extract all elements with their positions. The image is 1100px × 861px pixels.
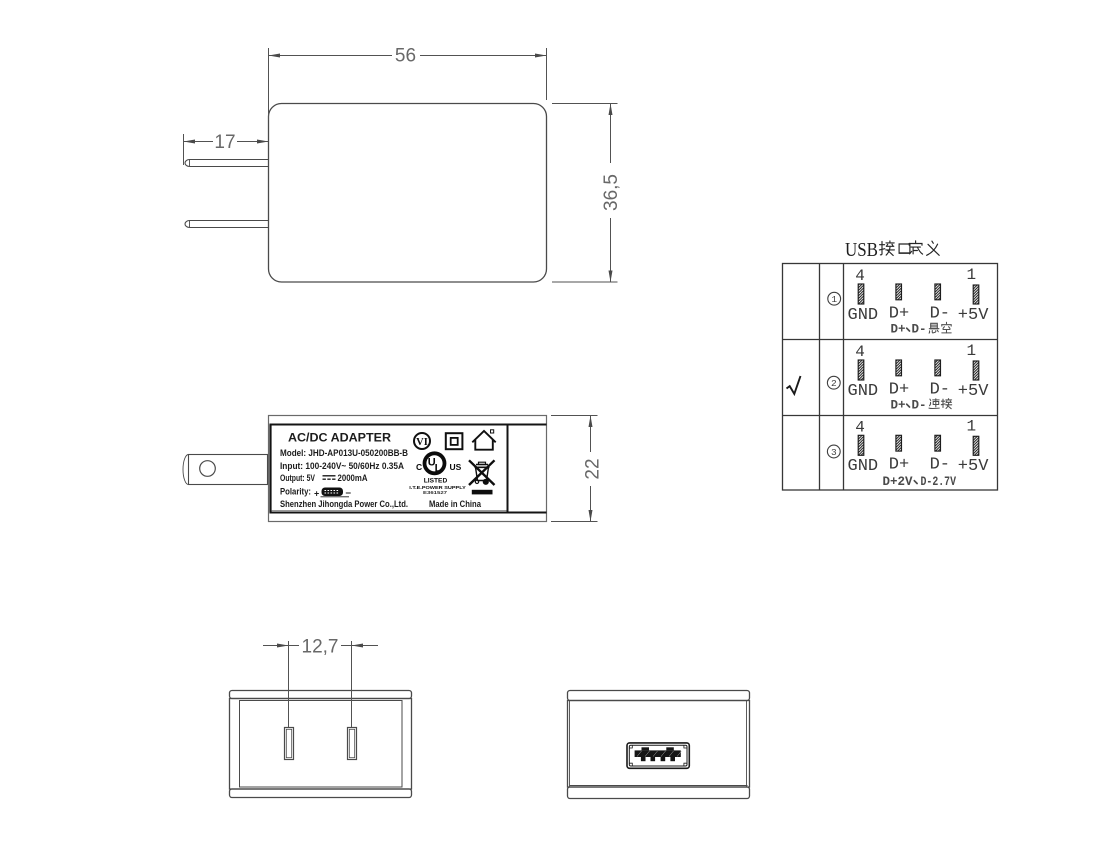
- svg-text:VI: VI: [416, 437, 428, 448]
- svg-text:D-: D-: [930, 304, 950, 323]
- svg-text:56: 56: [395, 46, 416, 67]
- svg-text:Model: JHD-AP013U-050200BB-B: Model: JHD-AP013U-050200BB-B: [280, 448, 408, 458]
- svg-text:GND: GND: [848, 306, 879, 325]
- svg-text:LISTED: LISTED: [424, 478, 448, 485]
- svg-text:D+: D+: [889, 304, 909, 323]
- svg-text:AC/DC ADAPTER: AC/DC ADAPTER: [288, 431, 391, 445]
- svg-text:D-: D-: [912, 323, 927, 337]
- svg-text:Output: 5V: Output: 5V: [280, 473, 315, 483]
- svg-text:Polarity:: Polarity:: [280, 487, 311, 497]
- svg-text:E361527: E361527: [423, 490, 448, 495]
- svg-text:12,7: 12,7: [302, 636, 339, 657]
- svg-text:3: 3: [831, 447, 837, 458]
- svg-text:+5V: +5V: [958, 306, 989, 325]
- svg-text:D+2V: D+2V: [883, 475, 913, 489]
- svg-text:Input: 100-240V~ 50/60Hz 0.3: Input: 100-240V~ 50/60Hz 0.35A: [280, 461, 404, 471]
- svg-text:+: +: [314, 489, 319, 499]
- svg-text:US: US: [450, 462, 462, 472]
- svg-text:2: 2: [831, 378, 837, 389]
- svg-text:1: 1: [831, 294, 837, 305]
- svg-text:1: 1: [966, 266, 976, 284]
- svg-text:D-: D-: [912, 399, 927, 413]
- svg-text:D-2.7V: D-2.7V: [921, 475, 957, 489]
- svg-text:C: C: [416, 462, 422, 472]
- svg-text:36,5: 36,5: [601, 174, 622, 211]
- svg-text:D+: D+: [891, 399, 906, 413]
- svg-text:D+: D+: [891, 323, 906, 337]
- svg-text:17: 17: [214, 132, 235, 153]
- svg-text:Made in China: Made in China: [429, 499, 482, 509]
- svg-text:L: L: [435, 463, 442, 475]
- svg-text:4: 4: [855, 267, 865, 285]
- svg-text:22: 22: [583, 458, 604, 479]
- svg-text:Shenzhen Jihongda Power Co.,Lt: Shenzhen Jihongda Power Co.,Ltd.: [280, 499, 408, 509]
- svg-text:2000mA: 2000mA: [338, 473, 368, 483]
- svg-text:USB: USB: [845, 239, 878, 261]
